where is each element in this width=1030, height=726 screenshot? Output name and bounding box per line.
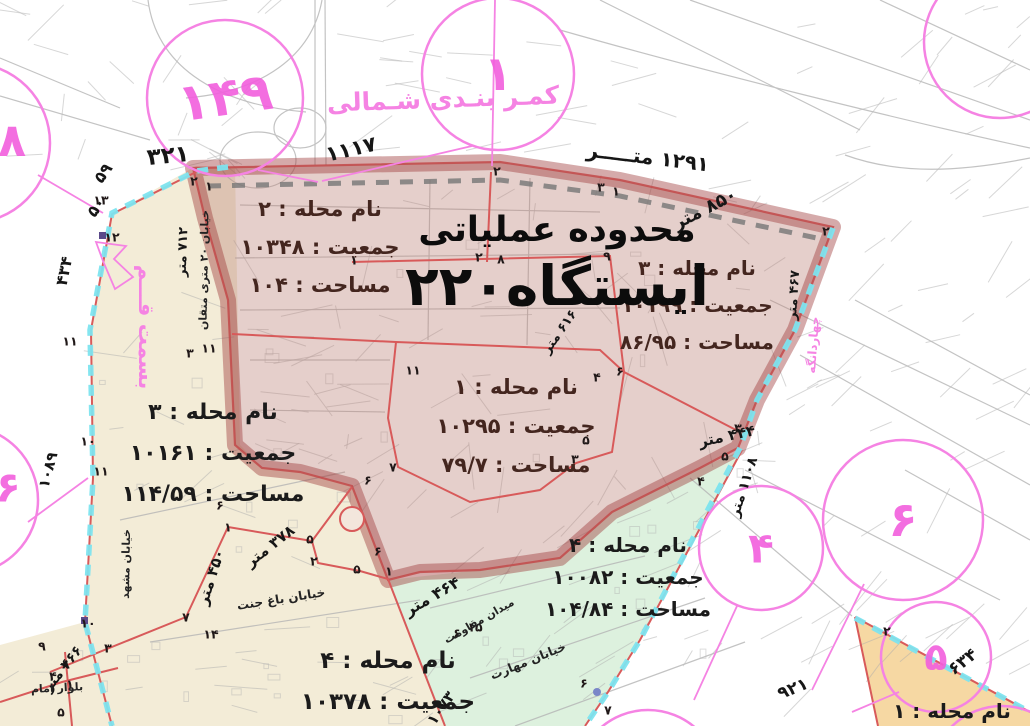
callout-circle — [0, 426, 38, 574]
callout-circle — [576, 710, 720, 726]
callout-circle — [823, 440, 983, 600]
callout-circle — [699, 486, 823, 610]
callout-circle — [147, 20, 303, 176]
map-canvas[interactable]: محدوده عملیاتی ایستگاه۲۲۰ ۲۱۱۳۱۲۱۱۳۱۱۲۳۱… — [0, 0, 1030, 726]
callout-circle — [924, 0, 1030, 118]
callout-circle — [422, 0, 574, 150]
map-graphics — [0, 0, 1030, 726]
callout-circle — [0, 63, 50, 223]
